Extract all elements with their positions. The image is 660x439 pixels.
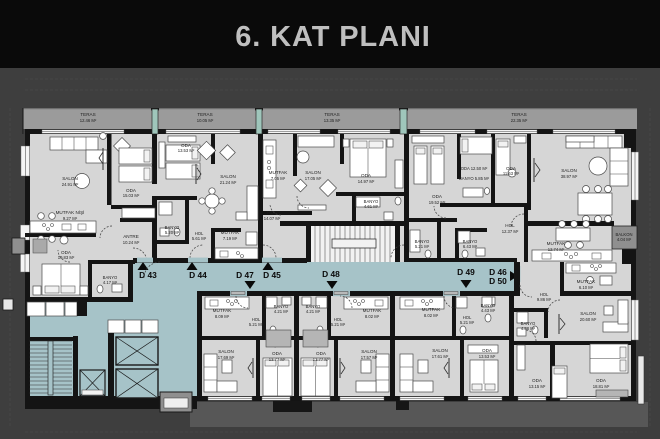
svg-text:19.52 M²: 19.52 M² <box>429 200 446 205</box>
svg-text:17.69 M²: 17.69 M² <box>218 355 235 360</box>
svg-text:TERAS: TERAS <box>197 112 212 117</box>
svg-text:10.05 M²: 10.05 M² <box>197 118 214 123</box>
svg-text:14.97 M²: 14.97 M² <box>358 179 375 184</box>
svg-text:D 43: D 43 <box>139 270 157 280</box>
svg-text:SALON: SALON <box>62 176 78 181</box>
svg-text:18.81 M²: 18.81 M² <box>593 384 610 389</box>
svg-text:6.43 M²: 6.43 M² <box>463 244 478 249</box>
svg-text:SALON: SALON <box>220 174 236 179</box>
svg-text:17.61 M²: 17.61 M² <box>432 354 449 359</box>
svg-text:13.15 M²: 13.15 M² <box>529 384 546 389</box>
svg-text:D 47: D 47 <box>236 270 254 280</box>
svg-text:D 48: D 48 <box>322 269 340 279</box>
svg-text:7.19 M²: 7.19 M² <box>223 236 238 241</box>
svg-text:9.86 M²: 9.86 M² <box>537 297 552 302</box>
svg-text:SALON: SALON <box>305 170 321 175</box>
svg-text:TERAS: TERAS <box>80 112 95 117</box>
svg-text:8.02 M²: 8.02 M² <box>365 314 380 319</box>
svg-text:ODA: ODA <box>532 378 543 383</box>
svg-text:MUTFAK: MUTFAK <box>221 230 241 235</box>
svg-text:ODA: ODA <box>432 194 443 199</box>
svg-text:SALON: SALON <box>432 348 448 353</box>
svg-text:MUTFAK: MUTFAK <box>269 170 289 175</box>
svg-text:5.21 M²: 5.21 M² <box>249 322 264 327</box>
svg-text:ODA 12.50 M²: ODA 12.50 M² <box>461 166 488 171</box>
svg-text:ODA: ODA <box>482 348 493 353</box>
svg-text:MUTFAK: MUTFAK <box>213 308 233 313</box>
svg-text:ODA: ODA <box>316 351 327 356</box>
svg-text:11.63 M²: 11.63 M² <box>503 171 520 176</box>
svg-text:D 49: D 49 <box>457 267 475 277</box>
svg-text:5.61 M²: 5.61 M² <box>192 236 207 241</box>
svg-text:8.09 M²: 8.09 M² <box>215 314 230 319</box>
svg-text:12.37 M²: 12.37 M² <box>502 229 519 234</box>
svg-text:5.21 M²: 5.21 M² <box>331 322 346 327</box>
svg-text:17.05 M²: 17.05 M² <box>305 176 322 181</box>
svg-text:SALON: SALON <box>561 168 577 173</box>
svg-text:13.77 M²: 13.77 M² <box>269 357 286 362</box>
svg-text:5.21 M²: 5.21 M² <box>460 320 475 325</box>
svg-text:4.43 M²: 4.43 M² <box>481 308 496 313</box>
svg-text:SALON: SALON <box>580 311 596 316</box>
svg-text:SALON: SALON <box>361 349 377 354</box>
svg-text:MUTFAK: MUTFAK <box>547 241 567 246</box>
svg-text:ANTRE: ANTRE <box>123 234 139 239</box>
svg-text:MUTFAK: MUTFAK <box>363 308 383 313</box>
svg-text:BANYO 5.85 M²: BANYO 5.85 M² <box>459 176 490 181</box>
svg-text:13.53 M²: 13.53 M² <box>479 354 496 359</box>
svg-text:38.97 M²: 38.97 M² <box>561 174 578 179</box>
svg-text:15.03 M²: 15.03 M² <box>123 193 140 198</box>
svg-text:ODA: ODA <box>272 351 283 356</box>
svg-text:4.17 M²: 4.17 M² <box>103 280 118 285</box>
svg-text:D 44: D 44 <box>189 270 207 280</box>
svg-text:6.10 M²: 6.10 M² <box>579 285 594 290</box>
svg-text:7.05 M²: 7.05 M² <box>271 176 286 181</box>
svg-text:21.24 M²: 21.24 M² <box>220 180 237 185</box>
svg-text:5.21 M²: 5.21 M² <box>415 244 430 249</box>
svg-text:ODA: ODA <box>361 173 372 178</box>
svg-text:12.74 M²: 12.74 M² <box>548 247 565 252</box>
svg-text:MUTFAK NİŞİ: MUTFAK NİŞİ <box>56 209 85 215</box>
svg-text:MUTFAK: MUTFAK <box>577 279 597 284</box>
svg-text:14.07 M²: 14.07 M² <box>264 216 281 221</box>
svg-text:12.46 M²: 12.46 M² <box>80 118 97 123</box>
svg-text:20.60 M²: 20.60 M² <box>580 317 597 322</box>
svg-text:6. KAT PLANI: 6. KAT PLANI <box>235 21 431 53</box>
svg-text:D 45: D 45 <box>263 270 281 280</box>
svg-text:4.61 M²: 4.61 M² <box>364 204 379 209</box>
svg-text:8.02 M²: 8.02 M² <box>424 313 439 318</box>
svg-text:13.35 M²: 13.35 M² <box>324 118 341 123</box>
svg-text:HOL: HOL <box>505 223 515 228</box>
svg-text:4.04 M²: 4.04 M² <box>617 237 632 242</box>
svg-text:13.77 M²: 13.77 M² <box>313 357 330 362</box>
svg-text:D 50: D 50 <box>489 276 507 286</box>
svg-text:TERAS: TERAS <box>324 112 339 117</box>
svg-text:SALON: SALON <box>218 349 234 354</box>
svg-text:17.57 M²: 17.57 M² <box>361 355 378 360</box>
svg-text:22.35 M²: 22.35 M² <box>511 118 528 123</box>
svg-text:5.20 M²: 5.20 M² <box>165 230 180 235</box>
svg-text:4.88 M²: 4.88 M² <box>521 326 536 331</box>
svg-text:9.27 M²: 9.27 M² <box>63 216 78 221</box>
svg-text:24.91 M²: 24.91 M² <box>62 182 79 187</box>
svg-text:MUTFAK: MUTFAK <box>422 307 442 312</box>
svg-text:HOL: HOL <box>267 210 277 215</box>
svg-text:TERAS: TERAS <box>511 112 526 117</box>
svg-text:10.24 M²: 10.24 M² <box>123 240 140 245</box>
svg-text:13.53 M²: 13.53 M² <box>178 148 195 153</box>
svg-text:4.21 M²: 4.21 M² <box>306 309 321 314</box>
svg-text:4.21 M²: 4.21 M² <box>274 309 289 314</box>
svg-text:ODA: ODA <box>596 378 607 383</box>
